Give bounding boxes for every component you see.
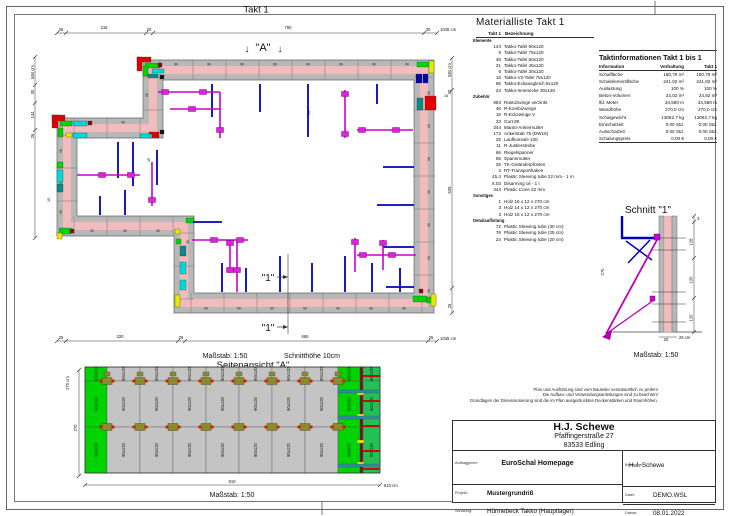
svg-text:15: 15 (47, 198, 51, 202)
field-projekt: Projekt: Mustergrundriß (453, 490, 622, 503)
material-list: Materialliste Takt 1 Takt 1Bezeichnung E… (476, 17, 594, 243)
svg-text:30: 30 (426, 27, 431, 32)
elevation-view: 60x12060x12060x12090x12090x12090x12090x1… (85, 366, 380, 473)
svg-text:665: 665 (302, 334, 310, 339)
svg-text:90x120: 90x120 (253, 366, 258, 380)
svg-text:90: 90 (59, 149, 63, 153)
section-marker-a: "A" ↓ ↓ (245, 42, 283, 55)
sheet-title: Takt 1 (243, 5, 268, 16)
svg-text:90x120: 90x120 (154, 366, 159, 380)
svg-text:90: 90 (303, 307, 307, 311)
svg-text:30: 30 (186, 240, 190, 244)
material-list-title: Materialliste Takt 1 (476, 17, 594, 28)
svg-text:90x120: 90x120 (319, 442, 324, 456)
svg-text:1045 cm: 1045 cm (440, 336, 457, 341)
svg-text:90: 90 (427, 157, 431, 161)
svg-text:320: 320 (117, 334, 125, 339)
svg-text:60x120: 60x120 (347, 366, 352, 380)
material-list-header: Takt 1Bezeichnung (476, 29, 594, 38)
svg-text:216: 216 (101, 25, 109, 30)
svg-text:90: 90 (369, 307, 373, 311)
svg-text:90x120: 90x120 (220, 442, 225, 456)
svg-text:90x120: 90x120 (286, 366, 291, 380)
svg-text:60x120: 60x120 (369, 442, 374, 456)
svg-text:90: 90 (336, 307, 340, 311)
svg-text:90: 90 (121, 121, 125, 125)
takt-info-row: Ausschalzeit0:00 Std.0:00 Std. (599, 128, 717, 135)
svg-text:90x120: 90x120 (319, 366, 324, 380)
svg-text:90: 90 (339, 63, 343, 67)
svg-text:90x120: 90x120 (220, 366, 225, 380)
material-list-name-header: Bezeichnung (505, 31, 534, 36)
section-view: 3 128 120 120 270 20 25 cm (600, 214, 702, 342)
svg-text:90: 90 (270, 307, 274, 311)
svg-text:16: 16 (444, 94, 448, 98)
svg-text:90x120: 90x120 (121, 396, 126, 410)
svg-text:60x120: 60x120 (94, 442, 99, 456)
svg-text:810: 810 (229, 479, 237, 484)
svg-text:90: 90 (427, 190, 431, 194)
svg-text:90: 90 (90, 229, 94, 233)
material-item: 24Plastic Sleeving tube (20 cm) (476, 237, 594, 243)
svg-text:60x120: 60x120 (94, 396, 99, 410)
svg-text:90x120: 90x120 (286, 396, 291, 410)
takt-info-row: Schalgewicht13062,7 kg13062,7 kg (599, 114, 717, 121)
svg-text:629: 629 (447, 186, 452, 194)
svg-text:1045 cm: 1045 cm (440, 27, 457, 32)
field-datum: Datum: 08.01.2022 (623, 510, 715, 516)
svg-text:90x120: 90x120 (187, 442, 192, 456)
svg-text:90x120: 90x120 (187, 366, 192, 380)
takt-info-table: Taktinformationen Takt 1 bis 1 Informati… (599, 50, 717, 143)
svg-text:120: 120 (689, 314, 694, 322)
svg-text:90: 90 (405, 63, 409, 67)
svg-text:20: 20 (147, 27, 152, 32)
svg-text:25: 25 (179, 335, 184, 340)
section-push-pull-props (602, 234, 660, 340)
field-datei: Datei: DEMO.WSL (623, 492, 715, 505)
svg-text:90: 90 (372, 63, 376, 67)
takt-info-row: lfd. Meter34,580 m34,580 m (599, 99, 717, 106)
drawing-sheet: Takt 1 909090909090909090909090909090909… (0, 0, 730, 516)
svg-text:90x120: 90x120 (286, 442, 291, 456)
takt-info-row: Wandhöhe270,0 cm270,0 cm (599, 106, 717, 113)
svg-text:90x120: 90x120 (121, 442, 126, 456)
svg-text:128: 128 (689, 238, 694, 246)
svg-text:60x120: 60x120 (369, 396, 374, 410)
svg-text:25: 25 (429, 335, 434, 340)
svg-text:90: 90 (145, 93, 149, 97)
svg-text:90x120: 90x120 (187, 396, 192, 410)
takt-info-row: Beton-Volumen24,02 m³24,82 m³ (599, 92, 717, 99)
elevation-scale-caption: Maßstab: 1:50 (210, 492, 255, 499)
svg-text:270: 270 (600, 268, 605, 276)
material-list-qty-header: Takt 1 (476, 31, 501, 36)
takt-info-header: Information Vorhaltung Takt 1 (599, 64, 717, 71)
svg-text:60x120: 60x120 (347, 442, 352, 456)
svg-text:90: 90 (427, 223, 431, 227)
svg-text:90x120: 90x120 (319, 396, 324, 410)
takt-info-row: Schalungspreis0,00 €0,00 € (599, 135, 717, 142)
svg-text:30: 30 (30, 89, 35, 94)
svg-text:270 cm: 270 cm (65, 376, 70, 390)
plan-scale-caption: Maßstab: 1:50 (203, 353, 248, 360)
svg-text:20: 20 (664, 337, 669, 342)
svg-text:90x120: 90x120 (253, 442, 258, 456)
svg-text:90: 90 (273, 63, 277, 67)
title-block-company: H.J. Schewe Pfaffingerstraße 27 83533 Ed… (453, 421, 715, 451)
section-title: Schnitt "1" (625, 205, 671, 216)
plan-cutheight-caption: Schnitthöhe 10cm (284, 353, 340, 360)
svg-text:25 cm: 25 cm (679, 335, 691, 340)
field-auftraggeber: Auftraggeber: EuroSchal Homepage (453, 460, 622, 485)
svg-text:90: 90 (240, 63, 244, 67)
svg-text:810 cm: 810 cm (384, 483, 398, 488)
takt-info-row: Einschalzeit0:00 Std.0:00 Std. (599, 121, 717, 128)
marker-1-label: "1" (262, 273, 275, 284)
svg-text:25: 25 (59, 27, 64, 32)
arrow-down-icon: ↓ (245, 44, 250, 55)
svg-text:760: 760 (285, 25, 293, 30)
takt-info-row: Auslastung100 %100 % (599, 85, 717, 92)
svg-text:90: 90 (123, 229, 127, 233)
svg-text:90x120: 90x120 (121, 366, 126, 380)
corner-panels (52, 57, 436, 307)
svg-text:90: 90 (427, 91, 431, 95)
svg-text:60x120: 60x120 (369, 366, 374, 380)
svg-text:25: 25 (59, 335, 64, 340)
svg-text:90: 90 (427, 124, 431, 128)
svg-text:90: 90 (207, 63, 211, 67)
takt-info-body: Schalfläche180,79 m²180,79 m²Schalelemen… (599, 71, 717, 143)
svg-text:26: 26 (30, 133, 35, 138)
svg-text:90: 90 (427, 256, 431, 260)
svg-text:60x120: 60x120 (347, 396, 352, 410)
svg-text:15: 15 (147, 158, 151, 162)
svg-text:60x120: 60x120 (94, 366, 99, 380)
svg-text:90: 90 (174, 63, 178, 67)
svg-text:90x120: 90x120 (154, 442, 159, 456)
svg-text:3: 3 (697, 216, 700, 221)
marker-a-label: "A" (255, 42, 270, 54)
takt-info-row: Schalelementfläche241,02 m²241,82 m² (599, 78, 717, 85)
svg-text:684 cm: 684 cm (447, 63, 452, 77)
panel-labels: 9090909090909090909090909090909090909090… (59, 62, 431, 311)
svg-text:90: 90 (237, 307, 241, 311)
field-schalung: Schalung: Hünnebeck Takko (Hauptlager) (453, 508, 622, 516)
svg-text:90: 90 (402, 307, 406, 311)
svg-text:25: 25 (447, 303, 452, 308)
marker-1-label: "1" (262, 323, 275, 334)
disclaimer-note: Plan und Ausführung sind vom Bauleiter v… (420, 387, 658, 403)
svg-text:90: 90 (156, 229, 160, 233)
section-scale-caption: Maßstab: 1:50 (634, 352, 679, 359)
takt-info-title: Taktinformationen Takt 1 bis 1 (599, 53, 717, 62)
svg-text:90: 90 (427, 289, 431, 293)
section-platform-bracket (622, 216, 659, 263)
floor-plan: 9090909090909090909090909090909090909090… (52, 57, 436, 313)
svg-text:684 cm: 684 cm (30, 65, 35, 79)
svg-text:90x120: 90x120 (154, 396, 159, 410)
material-list-body: Elemente144Takko-Tafel 90x1206Takko-Tafe… (476, 38, 594, 243)
title-block: H.J. Schewe Pfaffingerstraße 27 83533 Ed… (452, 420, 716, 503)
svg-text:90: 90 (59, 210, 63, 214)
svg-text:14: 14 (307, 111, 311, 115)
takt-info-row: Schalfläche180,79 m²180,79 m² (599, 71, 717, 78)
svg-text:120: 120 (689, 276, 694, 284)
svg-text:90: 90 (306, 63, 310, 67)
arrow-down-icon: ↓ (278, 44, 283, 55)
svg-text:90x120: 90x120 (253, 396, 258, 410)
svg-text:270: 270 (73, 424, 78, 432)
svg-text:134: 134 (30, 111, 35, 119)
svg-text:90x120: 90x120 (220, 396, 225, 410)
svg-text:90: 90 (204, 307, 208, 311)
field-bearbeiter: Bearbeiter: H.J. Schewe (623, 462, 715, 487)
